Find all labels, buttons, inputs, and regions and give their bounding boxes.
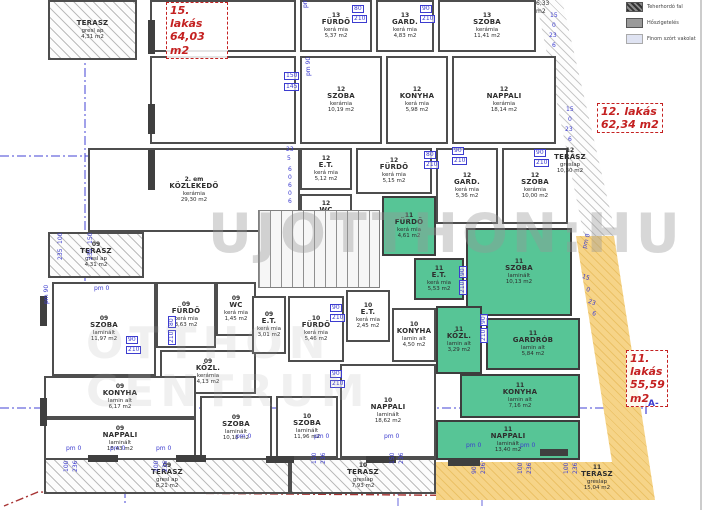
room-label-line: GARDRÓB	[513, 337, 553, 345]
dimension-label: 236	[527, 463, 533, 474]
room-label: 10TERASZgreslap7,93 m2	[347, 463, 379, 489]
room-label-line: 18,62 m2	[371, 418, 406, 424]
room-wc: 09WCkerá mia1,45 m2	[216, 282, 256, 336]
dimension-label: 23	[286, 147, 294, 153]
dimension-label: 80	[424, 151, 436, 159]
dimension-label: 150	[312, 453, 318, 464]
dimension-label: 210	[452, 157, 467, 165]
dimension-label: 100	[64, 461, 70, 472]
room-label: 11GARDRÓBlamin alt5,84 m2	[513, 331, 553, 357]
room-konyha: 11KONYHAlamin alt7,16 m2	[460, 374, 580, 418]
room-label-line: FÜRDŐ	[395, 219, 424, 227]
room-label-line: 2,45 m2	[356, 323, 380, 329]
room-label-line: 11,41 m2	[473, 33, 501, 39]
dimension-label: 145	[284, 83, 299, 91]
apartment-number: 12. lakás	[601, 105, 659, 118]
room-label-line: 4,31 m2	[80, 262, 112, 268]
room-label: 10KONYHAlamin alt4,50 m2	[397, 322, 431, 348]
room-label-line: E.T.	[356, 309, 380, 317]
dimension-label: 236	[73, 461, 79, 472]
room-nappali: 09NAPPALIlaminált18,43 m2	[44, 418, 196, 460]
dimension-label: 15	[566, 107, 574, 113]
dimension-label: 6	[568, 137, 572, 143]
room-label-line: KÖZL.	[447, 333, 471, 341]
room-label-line: GARD.	[454, 179, 480, 187]
dimension-label: 210	[459, 280, 467, 295]
room-label-line: 4,31 m2	[77, 34, 109, 40]
dimension-label: 235	[88, 249, 94, 260]
room-szoba: 10SZOBAlaminált11,96 m2	[276, 396, 338, 458]
dimension-label: 80	[168, 316, 176, 328]
room-label-line: NAPPALI	[371, 404, 406, 412]
dimension-label: 90	[480, 314, 488, 326]
room-label: TERASZgresl ap4,31 m2	[77, 20, 109, 40]
room-label-line: 10,00 m2	[521, 193, 549, 199]
room-label-line: TERASZ	[554, 154, 586, 162]
dimension-label: 100	[564, 463, 570, 474]
wall-opening	[148, 20, 155, 54]
room-label-line: 1,45 m2	[224, 316, 248, 322]
dimension-label: 210	[168, 330, 176, 345]
room-label-line: 29,30 m2	[169, 197, 218, 203]
apartment-number: 11. lakás	[630, 352, 664, 378]
dimension-label: 90	[452, 147, 464, 155]
legend: Teherhordó fal Hőszigetelés Finom szórt …	[626, 2, 718, 50]
room-label-line: 4,61 m2	[395, 233, 424, 239]
room-label: 09TERASZgresl ap4,31 m2	[80, 242, 112, 268]
dimension-label: 80	[352, 5, 364, 13]
room-label-line: 10,19 m2	[327, 107, 355, 113]
room-e-t: 12E.T.kerá mia5,12 m2	[300, 148, 352, 190]
dimension-label: 236	[163, 461, 169, 472]
staircase	[258, 210, 380, 288]
dimension-label: pm 0	[66, 446, 81, 452]
room-label-line: 10,30 m2	[554, 168, 586, 174]
room-szoba: 11SZOBAlaminált10,13 m2	[466, 228, 572, 316]
dimension-label: pm 0	[110, 446, 125, 452]
dimension-label: pm 0	[94, 286, 109, 292]
dimension-label: 210	[534, 159, 549, 167]
room-nappali: 10NAPPALIlaminált18,62 m2	[340, 364, 436, 458]
wall-opening	[40, 398, 47, 426]
dimension-label: 6	[288, 183, 292, 189]
room-szoba: 13SZOBAkerámia11,41 m2	[438, 0, 536, 52]
room-szoba: 09SZOBAlaminált10,18 m2	[200, 396, 272, 460]
room-label-line: FÜRDŐ	[172, 308, 201, 316]
dimension-label: 100	[518, 463, 524, 474]
room-label-line: KONYHA	[400, 93, 434, 101]
dimension-label: 6	[552, 43, 556, 49]
room-label-line: 11,97 m2	[90, 336, 118, 342]
dimension-label: 23	[549, 33, 557, 39]
room-label-line: SZOBA	[222, 421, 250, 429]
dimension-label: 90	[420, 5, 432, 13]
room-label-line: FÜRDŐ	[302, 322, 331, 330]
wall-opening	[266, 456, 294, 463]
legend-label: Finom szórt vakolat	[647, 37, 696, 42]
dimension-label: 236	[321, 453, 327, 464]
dimension-label: pm 1,70	[303, 0, 309, 8]
dimension-label: 0	[288, 191, 292, 197]
room-label: 2. emKÖZLEKEDŐkerámia29,30 m2	[169, 177, 218, 203]
room-label: 10E.T.kerá mia2,45 m2	[356, 303, 380, 329]
wall-opening	[176, 455, 206, 462]
room-label-line: E.T.	[314, 162, 338, 170]
room-label-line: SZOBA	[505, 265, 533, 273]
room-e-t: 11E.T.kerá mia5,53 m2	[414, 258, 464, 300]
room-label-line: TERASZ	[77, 20, 109, 28]
legend-label: Teherhordó fal	[647, 5, 683, 10]
dimension-label: 0	[568, 117, 572, 123]
room-label-line: 5,98 m2	[400, 107, 434, 113]
dimension-label: 90	[330, 370, 342, 378]
insulation-swatch-icon	[626, 18, 643, 28]
room-label-line: 3,29 m2	[447, 347, 471, 353]
dimension-label: pm 90	[306, 57, 312, 76]
dimension-label: 150	[390, 453, 396, 464]
apartment-number: 15. lakás	[170, 4, 224, 30]
room-label: 11KONYHAlamin alt7,16 m2	[503, 383, 537, 409]
room-label: 09KÖZL.kerámia4,13 m2	[196, 359, 220, 385]
dimension-label: m2	[536, 9, 546, 15]
wall-opening	[540, 449, 568, 456]
dimension-label: 23	[565, 127, 573, 133]
room-ko-zl: 11KÖZL.lamin alt3,29 m2	[436, 306, 482, 374]
room-label: 09KONYHAlamin alt6,17 m2	[103, 384, 137, 410]
room-szoba: 12SZOBAkerámia10,19 m2	[300, 56, 382, 144]
dimension-label: pm 0	[156, 446, 171, 452]
apartment-area: 62,34 m2	[601, 118, 659, 131]
apartment-label-11-laka-s: 11. lakás55,59 m2	[626, 350, 668, 407]
wall-opening	[148, 104, 155, 134]
room-nappali: 12NAPPALIkerámia18,14 m2	[452, 56, 556, 144]
legend-label: Hőszigetelés	[647, 21, 679, 26]
room-e-t: 10E.T.kerá mia2,45 m2	[346, 290, 390, 342]
room-konyha: 09KONYHAlamin alt6,17 m2	[44, 376, 196, 418]
dimension-label: 100	[154, 461, 160, 472]
wall-opening	[448, 459, 480, 466]
room-label-line: 8,21 m2	[151, 483, 183, 489]
dimension-label: 236	[399, 453, 405, 464]
dimension-label: 90	[126, 336, 138, 344]
room-label-line: TERASZ	[347, 469, 379, 477]
room-label-line: FÜRDŐ	[380, 164, 409, 172]
room-label: 09SZOBAlaminált11,97 m2	[90, 316, 118, 342]
room-szoba: 09SZOBAlaminált11,97 m2	[52, 282, 156, 376]
dimension-label: pm 0	[384, 434, 399, 440]
room-label-line: 5,12 m2	[314, 176, 338, 182]
room-label: 11KÖZL.lamin alt3,29 m2	[447, 327, 471, 353]
apartment-label-12-laka-s: 12. lakás62,34 m2	[597, 103, 663, 133]
dimension-label: 6	[288, 199, 292, 205]
room-label-line: gresl ap	[77, 28, 109, 34]
apartment-label-15-laka-s: 15. lakás64,03 m2	[166, 2, 228, 59]
room-label-line: 4,83 m2	[392, 33, 418, 39]
room-label-line: 5,37 m2	[322, 33, 351, 39]
room-label-line: SZOBA	[473, 19, 501, 27]
room-gardro-b: 11GARDRÓBlamin alt5,84 m2	[486, 318, 580, 370]
room-label: 13GARD.kerá mia4,83 m2	[392, 13, 418, 39]
dimension-label: 0	[288, 175, 292, 181]
dimension-label: 0	[552, 23, 556, 29]
room-label-line: 4,13 m2	[196, 379, 220, 385]
dimension-label: 5	[287, 156, 291, 162]
room-label-line: FÜRDŐ	[322, 19, 351, 27]
apartment-area: 64,03 m2	[170, 30, 224, 56]
room-label: 10FÜRDŐkerá mia5,46 m2	[302, 316, 331, 342]
room-label-line: E.T.	[257, 318, 281, 326]
dimension-label: 90	[472, 466, 478, 474]
room-label-line: GARD.	[392, 19, 418, 27]
room-label: 13FÜRDŐkerá mia5,37 m2	[322, 13, 351, 39]
room-label-line: NAPPALI	[491, 433, 526, 441]
room-label-line: TERASZ	[80, 248, 112, 256]
room-label-line: 5,36 m2	[454, 193, 480, 199]
dimension-label: 236	[481, 463, 487, 474]
dimension-label: 90	[459, 266, 467, 278]
dimension-label: 6,33	[536, 1, 549, 7]
dimension-label: 236	[573, 463, 579, 474]
section-marker-a: A-	[648, 399, 659, 409]
room-label: 10NAPPALIlaminált18,62 m2	[371, 398, 406, 424]
room-terasz: TERASZgresl ap4,31 m2	[48, 0, 137, 60]
room-label-line: NAPPALI	[103, 432, 138, 440]
room-label-line: 7,93 m2	[347, 483, 379, 489]
room-label-line: KONYHA	[397, 328, 431, 336]
wall-opening	[88, 455, 118, 462]
room-e-t: 09E.T.kerá mia3,01 m2	[252, 296, 286, 354]
room-label-line: WC	[224, 302, 248, 310]
room-label: 11NAPPALIlaminált13,40 m2	[491, 427, 526, 453]
room-label-line: 15,04 m2	[581, 485, 613, 491]
room-label-line: KÖZLEKEDŐ	[169, 183, 218, 191]
room-label: 12FÜRDŐkerá mia5,15 m2	[380, 158, 409, 184]
dimension-label: 6	[288, 167, 292, 173]
room-fu-rdo: 09FÜRDŐkerá mia3,63 m2	[156, 282, 216, 348]
room-label-line: KONYHA	[503, 389, 537, 397]
dimension-label: 150	[88, 233, 94, 244]
dimension-label: 90	[330, 304, 342, 312]
dimension-label: pm 0	[466, 443, 481, 449]
legend-item-plaster: Finom szórt vakolat	[626, 34, 718, 44]
room-label-line: 7,16 m2	[503, 403, 537, 409]
room-label: 12NAPPALIkerámia18,14 m2	[487, 87, 522, 113]
dimension-label: 235	[58, 249, 64, 260]
room-label-line: SZOBA	[293, 420, 321, 428]
room-label-line: 5,84 m2	[513, 351, 553, 357]
room-label: 09E.T.kerá mia3,01 m2	[257, 312, 281, 338]
room-label-line: 18,14 m2	[487, 107, 522, 113]
room-label: 11FÜRDŐkerá mia4,61 m2	[395, 213, 424, 239]
dimension-label: 210	[352, 15, 367, 23]
dimension-label: pm 0	[236, 434, 251, 440]
wall-swatch-icon	[626, 2, 643, 12]
room-terasz: 12TERASZgreslap10,30 m2	[544, 140, 596, 182]
dimension-label: 90	[534, 149, 546, 157]
room-label-line: 4,50 m2	[397, 342, 431, 348]
dimension-label: 210	[424, 161, 439, 169]
room-label: 12KONYHAkerá mia5,98 m2	[400, 87, 434, 113]
room-label: 09WCkerá mia1,45 m2	[224, 296, 248, 322]
dimension-label: 210	[330, 314, 345, 322]
room-label: 12GARD.kerá mia5,36 m2	[454, 173, 480, 199]
room-label-line: 3,01 m2	[257, 332, 281, 338]
room-label-line: 5,15 m2	[380, 178, 409, 184]
floorplan-canvas: TERASZgresl ap4,31 m213FÜRDŐkerá mia5,37…	[0, 0, 720, 510]
room-area	[150, 56, 296, 144]
room-label: 11TERASZgreslap15,04 m2	[581, 465, 613, 491]
dimension-label: pm 0	[520, 443, 535, 449]
wall-opening	[148, 150, 155, 190]
room-label: 12E.T.kerá mia5,12 m2	[314, 156, 338, 182]
dimension-label: pm 90	[44, 285, 50, 304]
room-label-line: 5,53 m2	[427, 286, 451, 292]
dimension-label: 210	[126, 346, 141, 354]
legend-item-insulation: Hőszigetelés	[626, 18, 718, 28]
plaster-swatch-icon	[626, 34, 643, 44]
dimension-label: 210	[420, 15, 435, 23]
room-label: 12TERASZgreslap10,30 m2	[554, 148, 586, 174]
room-fu-rdo: 11FÜRDŐkerá mia4,61 m2	[382, 196, 436, 256]
dimension-label: 15	[550, 13, 558, 19]
dimension-label: 210	[330, 380, 345, 388]
room-label-line: SZOBA	[90, 322, 118, 330]
room-fu-rdo: 12FÜRDŐkerá mia5,15 m2	[356, 148, 432, 194]
room-label: 11E.T.kerá mia5,53 m2	[427, 266, 451, 292]
room-label: 11SZOBAlaminált10,13 m2	[505, 259, 533, 285]
room-label-line: 5,46 m2	[302, 336, 331, 342]
room-label-line: 6,17 m2	[103, 404, 137, 410]
room-konyha: 12KONYHAkerá mia5,98 m2	[386, 56, 448, 144]
room-label-line: KÖZL.	[196, 365, 220, 373]
legend-item-wall: Teherhordó fal	[626, 2, 718, 12]
room-label-line: TERASZ	[581, 471, 613, 479]
room-label-line: E.T.	[427, 272, 451, 280]
dimension-label: 100	[58, 233, 64, 244]
room-label: 12SZOBAkerámia10,19 m2	[327, 87, 355, 113]
room-label: 13SZOBAkerámia11,41 m2	[473, 13, 501, 39]
room-konyha: 10KONYHAlamin alt4,50 m2	[392, 308, 436, 362]
room-label-line: 10,13 m2	[505, 279, 533, 285]
room-label-line: NAPPALI	[487, 93, 522, 101]
dimension-label: pm 0	[314, 434, 329, 440]
room-label-line: SZOBA	[327, 93, 355, 101]
dimension-label: 210	[480, 328, 488, 343]
room-label-line: KONYHA	[103, 390, 137, 398]
dimension-label: 150	[284, 72, 299, 80]
